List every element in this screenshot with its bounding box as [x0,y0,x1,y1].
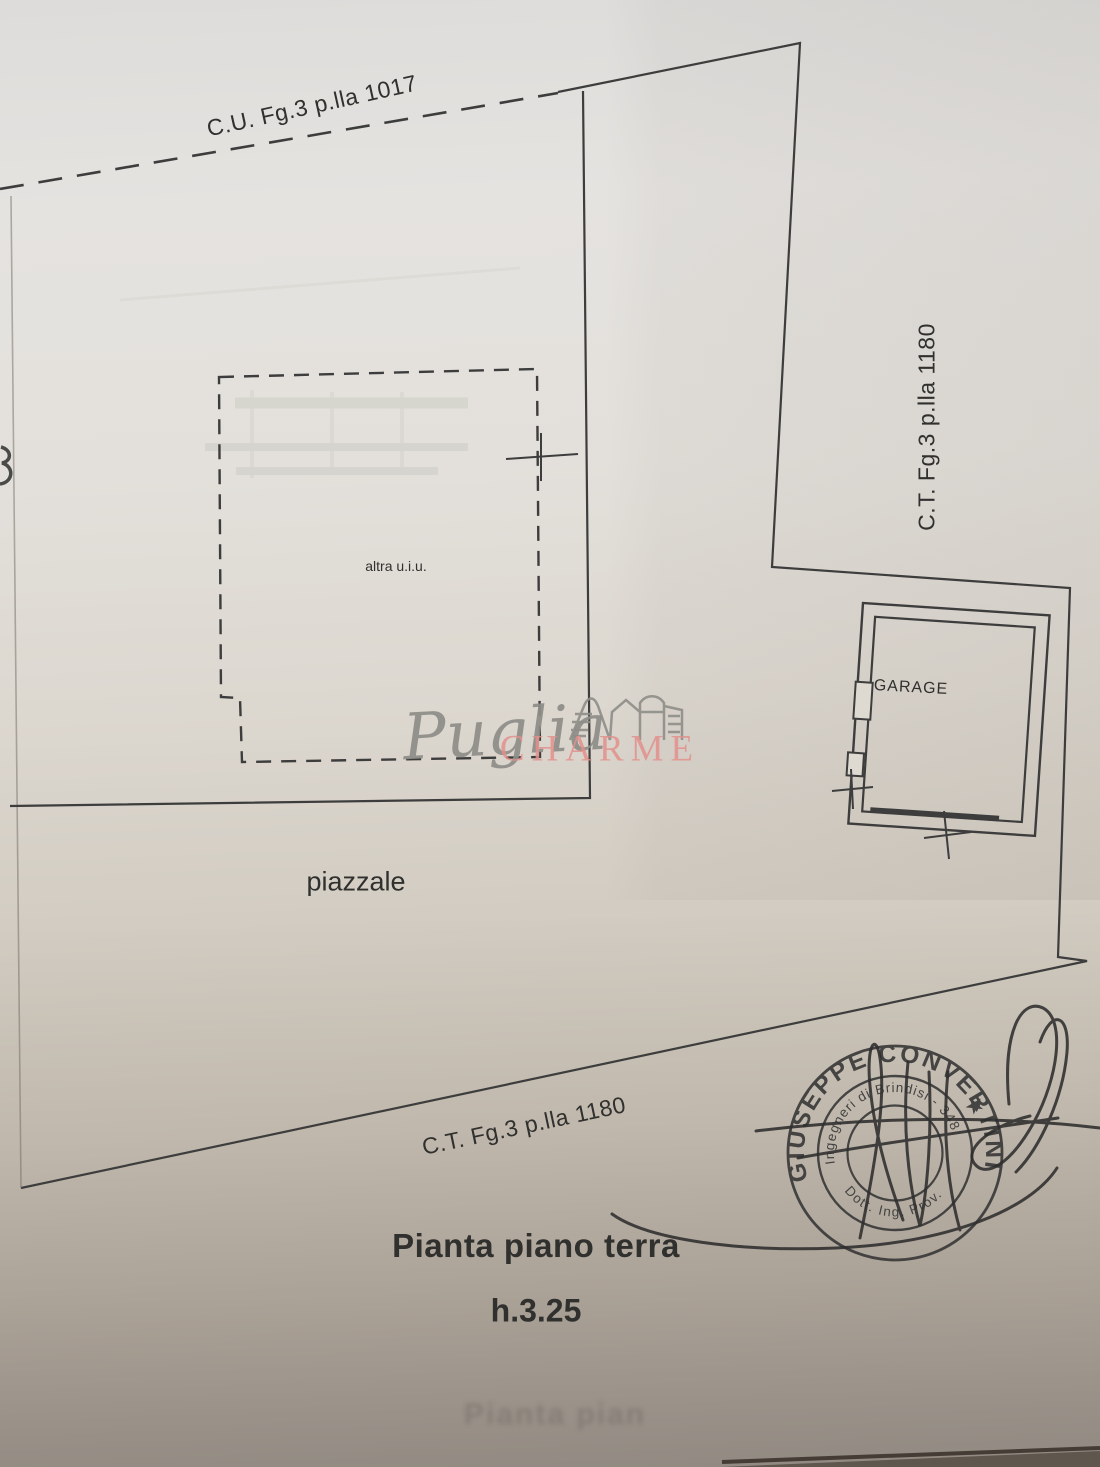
boundary-solid [21,43,1087,1188]
garage-wall-opening-1 [853,682,872,720]
survey-cross-east [506,433,578,481]
area-label-piazzale: piazzale [306,867,405,898]
room-label-garage: GARAGE [873,677,948,699]
boundary-west-faint [11,196,21,1188]
plan-title: Pianta piano terra [392,1227,680,1265]
watermark-caps-word: CHARME [500,728,700,771]
paper-edge-shadow [722,1448,1100,1467]
bleed-through-marks [120,268,520,478]
area-label-altra-uiu: altra u.i.u. [365,558,426,574]
scanned-floor-plan-page: GIUSEPPE CONVERTINI ★ Ingegneri di Brind… [0,0,1100,1467]
garage-outline [843,603,1049,836]
ghost-title-bleed: Pianta pian [464,1398,646,1432]
garage-wall-opening-2 [847,752,864,776]
edge-ink-mark [0,447,11,484]
height-annotation: h.3.25 [491,1293,582,1330]
parcel-label-right: C.T. Fg.3 p.lla 1180 [914,323,941,531]
